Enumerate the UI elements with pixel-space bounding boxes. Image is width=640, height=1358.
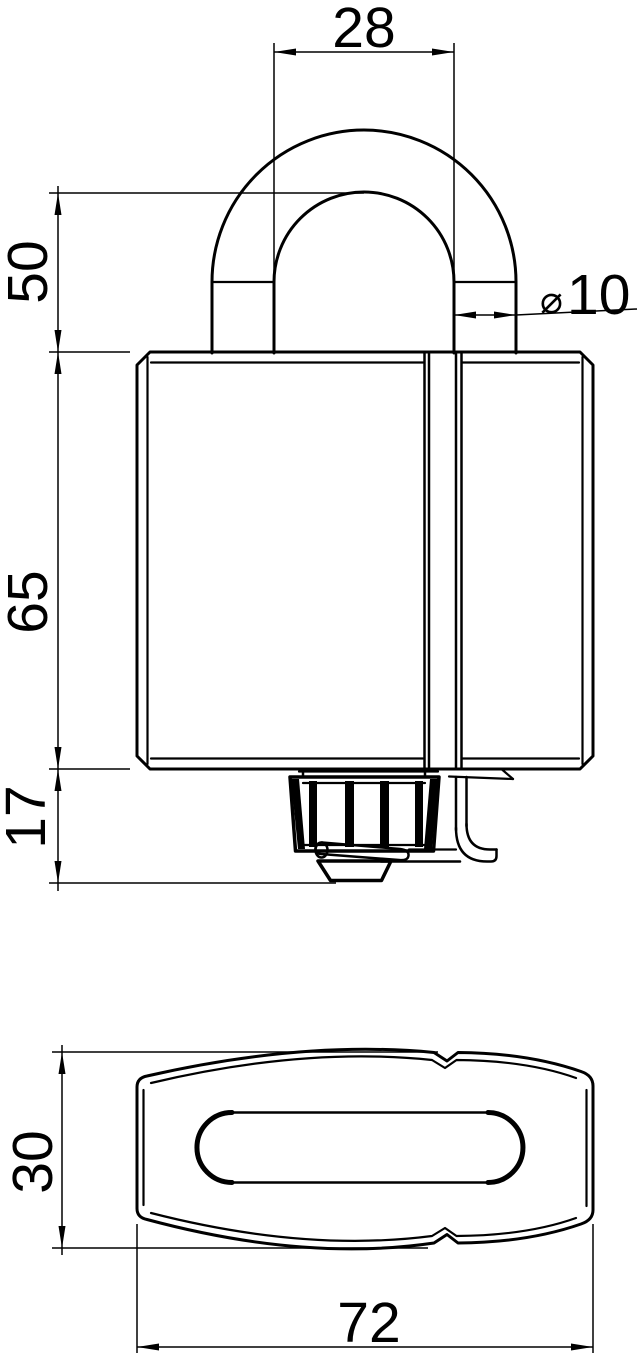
dim-label-knob-height: 17 <box>0 785 58 848</box>
dim-label-shackle-diameter: 10 <box>567 263 630 327</box>
body-outline <box>137 352 593 769</box>
arrowhead <box>137 1344 159 1351</box>
shackle-slot <box>197 1113 523 1183</box>
lock-body <box>137 352 593 769</box>
arrowhead <box>454 312 476 319</box>
arrowhead <box>494 312 516 319</box>
dimension-shackle-diameter: ⌀ 10 <box>454 263 637 327</box>
front-view <box>137 130 593 880</box>
arrowhead <box>59 1052 66 1074</box>
arrowhead <box>55 861 62 883</box>
cylinder-tip <box>318 861 391 881</box>
bottom-view <box>137 1049 593 1249</box>
shackle <box>212 130 516 353</box>
technical-drawing-canvas: 28 50 65 17 ⌀ 10 30 <box>0 0 640 1358</box>
dimension-body-depth: 30 <box>1 1045 438 1255</box>
dimension-body-width: 72 <box>137 1224 593 1355</box>
dim-label-body-depth: 30 <box>1 1130 65 1193</box>
shackle-inner-arc <box>274 192 454 282</box>
arrowhead <box>571 1344 593 1351</box>
technical-drawing-page: 28 50 65 17 ⌀ 10 30 <box>0 0 640 1358</box>
dim-label-shackle-inner-width: 28 <box>332 0 395 60</box>
knob-knurl-bands <box>291 779 438 849</box>
dimension-shackle-inner-width: 28 <box>274 0 454 281</box>
bottom-knob <box>290 769 513 881</box>
arrowhead <box>59 1226 66 1248</box>
body-groove <box>425 354 462 768</box>
arrowhead <box>55 193 62 215</box>
dim-label-body-height: 65 <box>0 570 60 633</box>
diameter-symbol: ⌀ <box>540 280 563 322</box>
dim-label-shackle-clearance-height: 50 <box>0 240 60 303</box>
arrowhead <box>274 49 296 56</box>
arrowhead <box>55 747 62 769</box>
dim-label-body-width: 72 <box>337 1291 400 1355</box>
slot-right-arc <box>488 1113 523 1183</box>
bottom-outline-inner-top <box>151 1056 576 1083</box>
arrowhead <box>55 330 62 352</box>
slot-left-arc <box>197 1113 232 1183</box>
arrowhead <box>55 352 62 374</box>
arrowhead <box>432 49 454 56</box>
shackle-outer-arc <box>212 130 516 282</box>
bottom-outline-inner-bottom <box>151 1213 576 1241</box>
